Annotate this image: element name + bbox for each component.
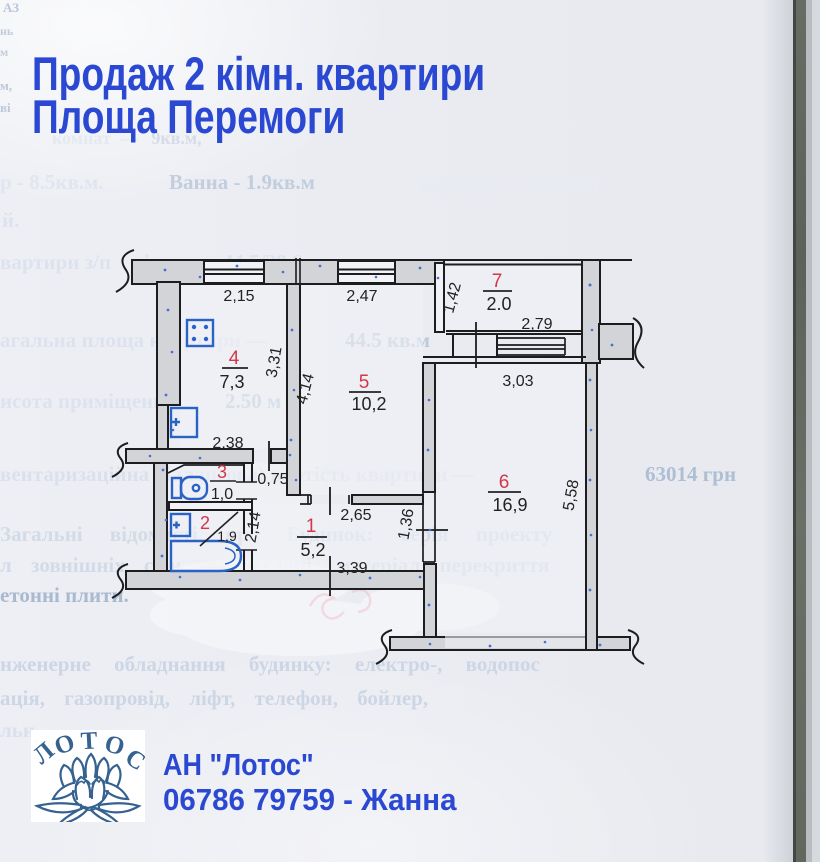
svg-text:3,03: 3,03 [502,373,533,390]
svg-text:4: 4 [229,348,240,369]
svg-text:10,2: 10,2 [351,394,386,414]
svg-text:1: 1 [306,516,317,537]
svg-text:3,39: 3,39 [336,560,367,577]
svg-text:5,2: 5,2 [300,540,325,560]
svg-text:0,75: 0,75 [257,471,288,488]
svg-text:2,79: 2,79 [521,316,552,333]
svg-text:3: 3 [217,462,227,482]
svg-text:1,0: 1,0 [211,486,233,503]
svg-text:2.0: 2.0 [486,294,511,314]
svg-text:5: 5 [359,372,370,393]
svg-text:1,9: 1,9 [217,528,237,544]
svg-text:2,65: 2,65 [340,507,371,524]
svg-text:16,9: 16,9 [492,495,527,515]
svg-text:2,15: 2,15 [223,288,254,305]
svg-text:2,47: 2,47 [346,288,377,305]
svg-text:7,3: 7,3 [219,372,244,392]
svg-text:Т: Т [80,730,98,755]
svg-text:2,38: 2,38 [212,435,243,452]
svg-text:7: 7 [492,271,503,292]
svg-text:6: 6 [499,472,510,493]
svg-text:2: 2 [200,513,210,533]
svg-text:С: С [120,744,145,776]
svg-text:О: О [101,730,127,761]
